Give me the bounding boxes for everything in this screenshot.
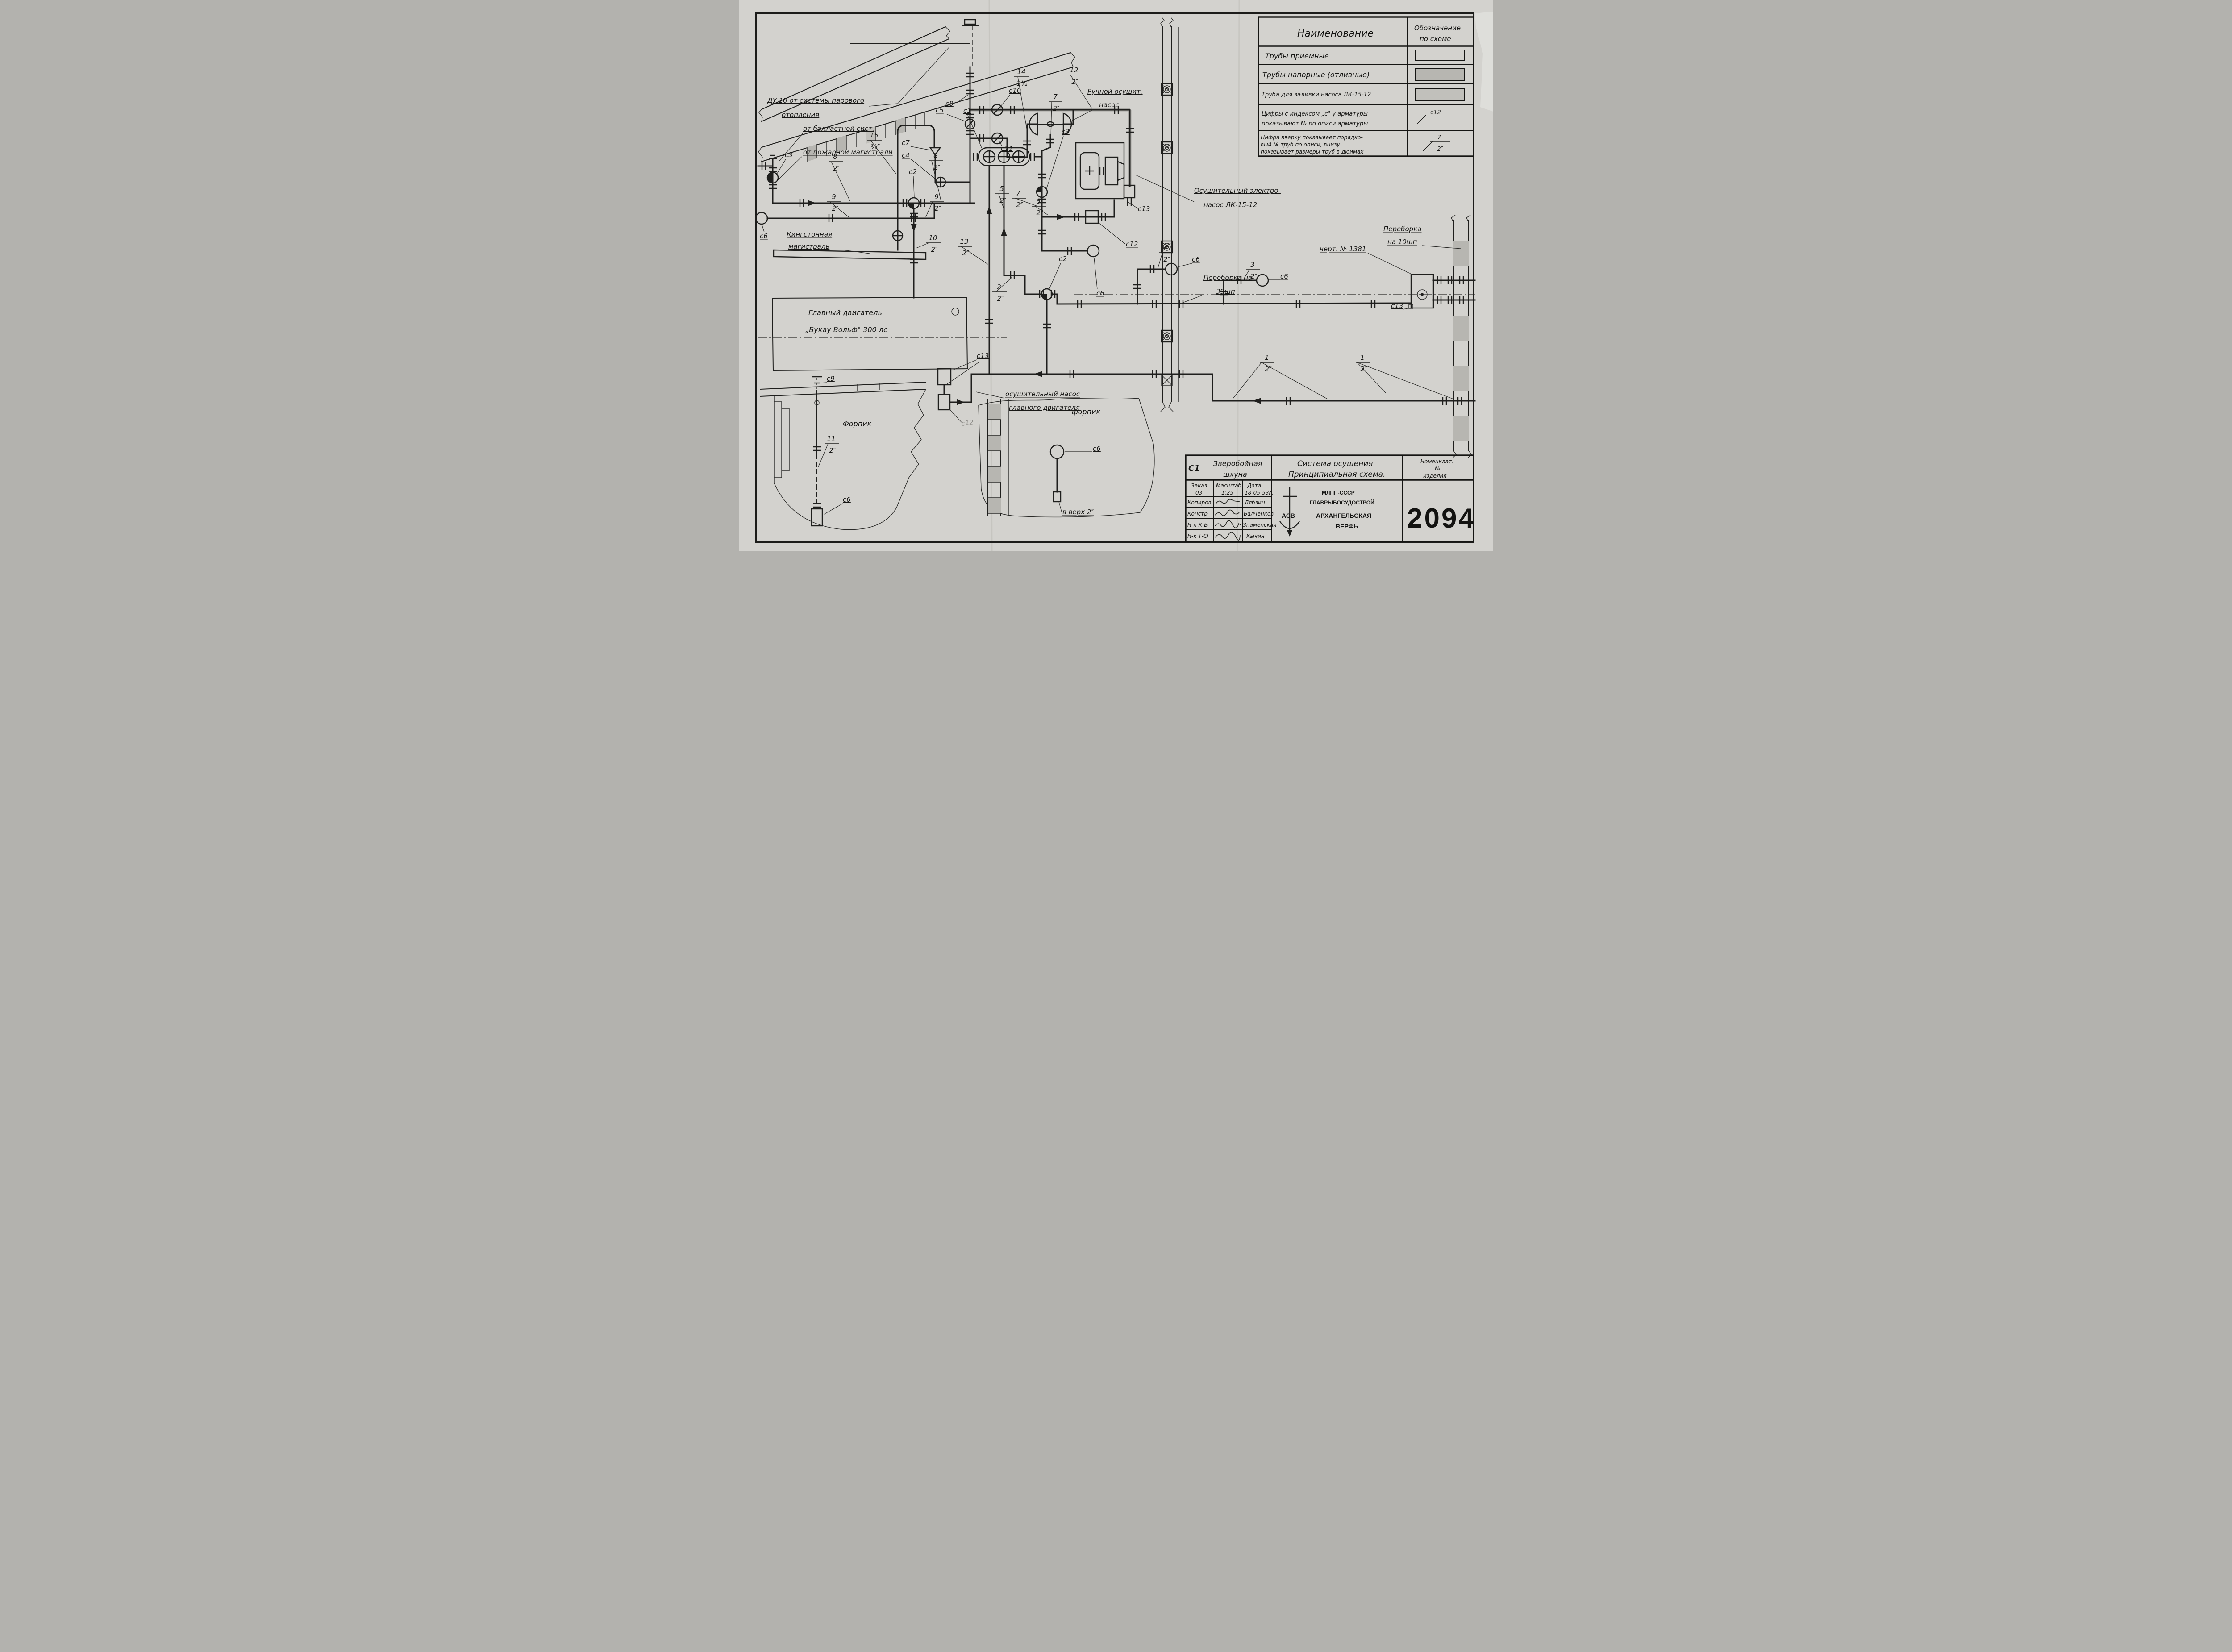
svg-text:6: 6	[1036, 197, 1041, 205]
svg-text:Дата: Дата	[1247, 483, 1261, 489]
svg-text:03: 03	[1195, 490, 1202, 496]
svg-text:14: 14	[1017, 68, 1025, 76]
legend-row-pipe-number: Цифра вверху показывает порядко-	[1261, 134, 1363, 141]
svg-text:2″: 2″	[1163, 255, 1170, 263]
drawing-canvas: ДУ 10 от системы парового отопления от б…	[739, 0, 1493, 551]
label-c6-fpm: с6	[1093, 445, 1101, 453]
svg-text:2″: 2″	[1053, 104, 1060, 112]
svg-text:4: 4	[1163, 244, 1168, 252]
svg-text:1: 1	[1360, 354, 1365, 362]
svg-text:АСВ: АСВ	[1282, 512, 1295, 519]
label-vverh: в верх 2″	[1062, 508, 1094, 516]
svg-text:насос ЛК-15-12: насос ЛК-15-12	[1203, 201, 1257, 209]
svg-text:7: 7	[1053, 93, 1058, 101]
svg-text:2″: 2″	[931, 246, 938, 254]
nomenclature: Номенклат.	[1420, 458, 1453, 465]
drawing-title: Система осушения	[1297, 459, 1373, 468]
label-c13: с13	[1138, 205, 1150, 213]
label-c6-mid: с6	[1280, 272, 1288, 280]
label-c2-mid: с2	[1059, 255, 1067, 263]
drawing-number: 2094	[1407, 503, 1476, 534]
role-copier: Копиров.	[1187, 499, 1213, 506]
name-lyabzin: Лябзин	[1244, 499, 1265, 506]
svg-text:насос: насос	[1099, 101, 1119, 109]
svg-text:Заказ: Заказ	[1191, 483, 1207, 489]
org-line2: ГЛАВРЫБОСУДОСТРОЙ	[1310, 499, 1374, 506]
svg-text:„Букау Вольф" 300 лс: „Букау Вольф" 300 лс	[805, 325, 887, 334]
svg-text:13: 13	[960, 237, 968, 246]
role-kb-head: Н-к К-Б	[1187, 522, 1208, 528]
svg-text:шхуна: шхуна	[1223, 470, 1247, 479]
svg-text:11: 11	[827, 435, 835, 443]
label-ballast: от балластной сист.	[803, 125, 874, 133]
label-c12: с12	[1126, 240, 1138, 248]
org-line1: МЛПП-СССР	[1322, 490, 1355, 496]
svg-text:на 10шп: на 10шп	[1387, 238, 1417, 246]
svg-text:№: №	[1434, 466, 1440, 472]
label-elpump: Осушительный электро-	[1194, 187, 1281, 195]
svg-text:9: 9	[832, 193, 836, 201]
role-designer: Констр.	[1187, 511, 1209, 517]
svg-text:12: 12	[1070, 66, 1078, 74]
label-c6-left: с6	[760, 232, 768, 240]
svg-text:магистраль: магистраль	[788, 242, 829, 250]
svg-text:5: 5	[999, 185, 1004, 193]
label-du10: ДУ 10 от системы парового	[767, 96, 864, 104]
svg-text:1: 1	[1265, 354, 1269, 362]
label-c5: с5	[936, 106, 944, 114]
svg-text:7: 7	[1437, 134, 1441, 141]
svg-text:главного двигателя: главного двигателя	[1009, 404, 1080, 412]
svg-text:показывает размеры труб в дюйм: показывает размеры труб в дюймах	[1261, 149, 1364, 155]
label-c11: с11	[1001, 145, 1013, 153]
label-c2: с2	[909, 168, 917, 176]
label-c7: с7	[902, 139, 910, 147]
svg-text:2″: 2″	[829, 446, 836, 454]
label-c1: с1	[963, 107, 971, 115]
label-bh39: Переборка на	[1203, 274, 1252, 282]
svg-text:39шп: 39шп	[1216, 287, 1235, 295]
label-c13-box: с13	[1391, 302, 1403, 310]
label-c6-fpl: с6	[843, 495, 851, 504]
svg-text:2″: 2″	[1036, 209, 1043, 217]
svg-text:отопления: отопления	[782, 111, 819, 119]
svg-text:2: 2	[997, 283, 1001, 291]
svg-text:показывают № по описи армат: показывают № по описи арматуры	[1262, 121, 1368, 127]
svg-text:2″: 2″	[933, 163, 941, 171]
svg-text:2″: 2″	[962, 249, 969, 257]
label-chert1381: черт. № 1381	[1320, 245, 1366, 253]
svg-text:Принципиальная схема.: Принципиальная схема.	[1288, 470, 1386, 479]
name-kychin: Кычин	[1246, 533, 1265, 539]
label-c4: с4	[902, 151, 910, 159]
label-bh10: Переборка	[1383, 225, 1421, 233]
name-balchenkov: Балченков	[1244, 511, 1274, 517]
bulkhead-10	[1451, 215, 1471, 458]
svg-text:вый № труб по описи, вниз: вый № труб по описи, внизу	[1261, 141, 1340, 148]
svg-text:2″: 2″	[934, 204, 941, 212]
paper-creases	[739, 0, 1493, 551]
label-c6-pump: с6	[1096, 289, 1104, 297]
svg-text:18-05-53г.: 18-05-53г.	[1245, 490, 1274, 496]
legend-row-suction: Трубы приемные	[1265, 52, 1329, 60]
svg-text:15: 15	[870, 131, 878, 139]
label-forpik-left: Форпик	[843, 420, 872, 428]
svg-text:2″: 2″	[1016, 201, 1023, 209]
org-line3: АРХАНГЕЛЬСКАЯ	[1316, 512, 1371, 519]
svg-text:изделия: изделия	[1423, 473, 1447, 479]
label-king: Кингстонная	[787, 230, 832, 238]
label-engine-1: Главный двигатель	[808, 308, 882, 317]
legend-row-discharge: Трубы напорные (отливные)	[1262, 71, 1370, 79]
name-znamenskaya: Знаменская	[1243, 522, 1277, 528]
svg-text:7: 7	[1016, 189, 1020, 197]
label-c6-39: с6	[1192, 255, 1200, 263]
label-c10: с10	[1009, 87, 1021, 95]
svg-text:1:25: 1:25	[1221, 490, 1233, 496]
svg-text:по схеме: по схеме	[1420, 35, 1451, 43]
svg-text:10: 10	[929, 234, 937, 242]
svg-text:с12: с12	[1430, 109, 1441, 116]
label-c8: с8	[945, 100, 954, 108]
blueprint-sheet: ДУ 10 от системы парового отопления от б…	[739, 0, 1493, 551]
svg-text:2″: 2″	[1437, 146, 1443, 153]
svg-text:2″: 2″	[997, 295, 1004, 303]
label-c12-pencil: с12	[961, 418, 974, 428]
label-forpik-mid: форпик	[1072, 408, 1100, 416]
svg-text:3: 3	[1250, 261, 1255, 269]
svg-text:2″: 2″	[1250, 272, 1258, 280]
label-engpump: осушительный насос	[1005, 390, 1080, 398]
svg-text:Обозначение: Обозначение	[1414, 24, 1461, 32]
legend-header: Наименование	[1297, 28, 1374, 39]
org-line4: ВЕРФЬ	[1336, 523, 1358, 530]
svg-text:Масштаб: Масштаб	[1216, 483, 1242, 489]
svg-text:8: 8	[933, 152, 938, 160]
ship-name: Зверобойная	[1213, 459, 1262, 468]
label-c13-eng: с13	[977, 352, 989, 360]
svg-text:8: 8	[833, 153, 837, 161]
svg-text:9: 9	[934, 193, 939, 201]
label-handpump: Ручной осушит.	[1087, 87, 1143, 96]
label-c3-hand: с3	[1062, 128, 1070, 136]
label-c3: с3	[785, 151, 793, 159]
role-to-head: Н-к Т-О	[1187, 533, 1208, 539]
legend-row-valve-index: Цифры с индексом „с" у арматуры	[1262, 111, 1368, 117]
legend-row-priming: Труба для заливки насоса ЛК-15-12	[1262, 92, 1371, 98]
system-code: С1	[1188, 464, 1200, 473]
label-c9: с9	[827, 375, 835, 383]
